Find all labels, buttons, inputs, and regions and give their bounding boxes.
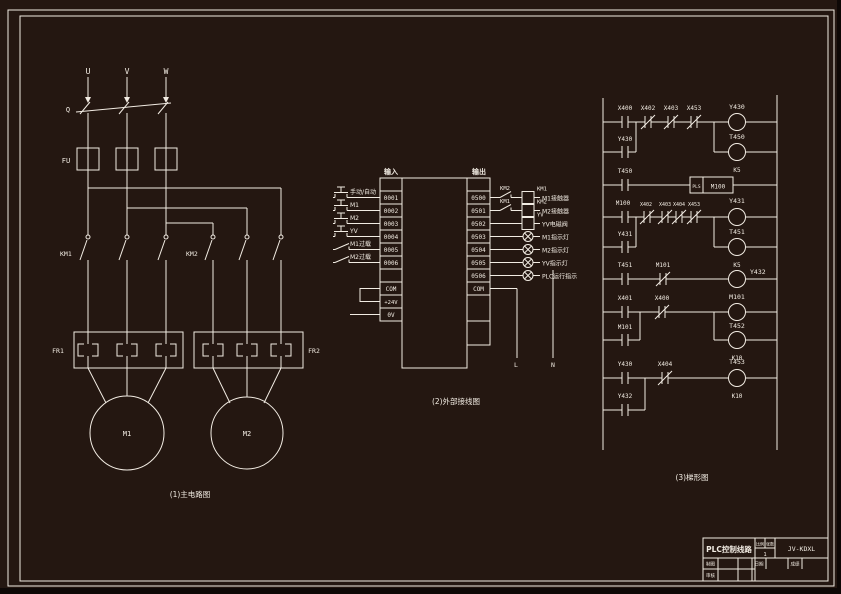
drawing-number: JV-KDXL (788, 545, 815, 553)
fr1-label: FR1 (52, 347, 64, 355)
ladder-rung-4: T451 M101 Y432 (603, 262, 777, 288)
com-terminal: COM (386, 286, 397, 293)
output-desc: PLC运行指示 (542, 273, 577, 281)
project-title: PLC控制线路 (706, 544, 752, 554)
right-shadow (837, 0, 841, 594)
km-contacts (80, 235, 283, 332)
contact-label: X400 (655, 295, 670, 302)
pushbutton-yv: YV (333, 226, 380, 237)
motor-m2: M2 (211, 368, 283, 469)
output-lamp-plc: PLC运行指示 (490, 271, 577, 281)
live-label: L (514, 361, 518, 369)
pls-operand-label: M100 (711, 184, 726, 191)
pushbutton-auto-manual: 手动/自动 (333, 187, 380, 198)
drawing-frame (8, 10, 834, 586)
schematic-svg: U V W Q FU KM1 KM2 (0, 0, 841, 594)
plc-body (402, 178, 467, 368)
input-addr: 0003 (384, 221, 399, 228)
plus24v-terminal: +24V (384, 300, 398, 306)
input-terminal-column: 0001 0002 0003 0004 0005 0006 COM +24V 0… (380, 178, 402, 321)
phase-u-label: U (86, 67, 91, 76)
timer-label: T450 (729, 133, 745, 141)
fuses (77, 113, 177, 235)
scale-label: 比例 (756, 541, 764, 547)
ladder-rung-5: X401 X400 M101 M101 T452 K10 (603, 293, 777, 362)
overload-contact-m2: M2过载 (333, 253, 380, 263)
sheet-label: 张数 (766, 541, 774, 547)
cad-drawing-canvas: U V W Q FU KM1 KM2 (0, 0, 841, 594)
input-device-label: YV (349, 228, 359, 235)
seal-contact-label: Y432 (618, 393, 633, 400)
timer-setpoint: K5 (733, 262, 741, 269)
output-addr: 0505 (471, 260, 486, 267)
input-device-label: 手动/自动 (350, 188, 376, 196)
output-terminal-column: 0500 0501 0502 0503 0504 0505 0506 COM (467, 178, 490, 345)
interlock-contact-label: KM2 (500, 186, 510, 192)
switch-q-label: Q (66, 106, 70, 114)
sheet-value: 1 (763, 552, 766, 558)
contact-label: X453 (687, 105, 702, 112)
output-addr: 0502 (471, 221, 486, 228)
output-lamp-m2: M2指示灯 (490, 245, 569, 255)
seal-contact-label: Y431 (618, 231, 633, 238)
input-device-label: M1 (350, 202, 359, 209)
com-out-terminal: COM (473, 286, 484, 293)
pushbutton-m2: M2 (333, 213, 380, 224)
motor-m1: M1 (88, 368, 166, 470)
ladder-rung-1: X400 X402 X403 X453 Y430 Y430 T450 K5 (603, 103, 777, 174)
output-lamp-m1: M1指示灯 (490, 232, 569, 242)
contact-label: X400 (618, 105, 633, 112)
contact-label: T451 (618, 262, 633, 269)
wiring-diagram: 输入 输出 0001 0002 0003 0004 0005 0006 COM … (333, 167, 577, 406)
interlock-contact-label: KM1 (500, 199, 510, 205)
contact-label: T450 (618, 168, 633, 175)
date-label: 日期 (755, 562, 764, 568)
coil-label: Y430 (729, 103, 745, 111)
input-addr: 0004 (384, 234, 399, 241)
main-circuit-diagram: U V W Q FU KM1 KM2 (52, 67, 320, 499)
title-block: PLC控制线路 比例 张数 1 JV-KDXL 制图 日期 成绩 审核 (703, 538, 828, 581)
pushbutton-m1: M1 (333, 200, 380, 211)
phase-v-label: V (125, 67, 130, 76)
phase-w-label: W (164, 67, 169, 76)
output-lamp-yv: YV指示灯 (490, 258, 568, 268)
neutral-label: N (551, 361, 555, 369)
drafter-label: 制图 (706, 561, 715, 568)
timer-label: T451 (729, 228, 745, 236)
output-addr: 0506 (471, 273, 486, 280)
coil-label: YV (537, 213, 544, 219)
timer-setpoint: K5 (733, 167, 741, 174)
output-desc: M2指示灯 (542, 247, 569, 255)
branch-buses (88, 188, 281, 235)
contact-label: Y430 (618, 361, 633, 368)
input-addr: 0006 (384, 260, 399, 267)
motor-m1-label: M1 (123, 430, 131, 438)
ladder-diagram: X400 X402 X403 X453 Y430 Y430 T450 K5 T4… (603, 95, 777, 482)
contact-label: X402 (640, 202, 652, 208)
output-desc: YV指示灯 (541, 260, 568, 268)
timer-setpoint: K10 (732, 393, 743, 400)
input-addr: 0001 (384, 195, 399, 202)
supply-lines: L N (490, 270, 555, 369)
contact-label: X401 (618, 295, 633, 302)
contact-label: X402 (641, 105, 656, 112)
output-addr: 0500 (471, 195, 486, 202)
fuse-label: FU (62, 157, 70, 165)
fr2-label: FR2 (308, 347, 320, 355)
ladder-rung-2: T450 PLS M100 (603, 168, 777, 193)
output-devices: KM2 KM1 M1接触器 KM1 KM2 M2接触器 YV YV电磁阀 (490, 186, 577, 369)
output-desc: M2接触器 (542, 208, 569, 216)
input-device-label: M2过载 (350, 253, 371, 261)
input-header: 输入 (384, 167, 398, 176)
contact-label: X403 (664, 105, 679, 112)
coil-label: Y432 (750, 268, 766, 276)
contact-label: X403 (659, 202, 671, 208)
switch-q-blades (76, 102, 171, 114)
contact-label: X453 (688, 202, 700, 208)
ladder-rung-3: M100 X402 X403 X404 X453 Y431 Y431 T451 … (603, 197, 777, 269)
km1-label: KM1 (60, 250, 72, 258)
contact-label: M101 (656, 262, 671, 269)
checker-label: 审核 (706, 572, 715, 579)
output-addr: 0504 (471, 247, 486, 254)
input-device-label: M2 (350, 215, 359, 222)
contact-label: M100 (616, 200, 631, 207)
output-addr: 0501 (471, 208, 486, 215)
contact-label: X404 (673, 202, 685, 208)
com-loop-wire (360, 289, 380, 302)
bottom-shadow (0, 588, 841, 594)
wiring-caption: (2)外部接线图 (432, 396, 480, 406)
thermal-relays (74, 332, 303, 368)
output-desc: M1指示灯 (542, 234, 569, 242)
input-addr: 0002 (384, 208, 399, 215)
ladder-caption: (3)梯形图 (675, 472, 708, 482)
input-devices: 手动/自动 M1 M2 YV M1过载 M2过载 (333, 187, 380, 315)
contact-label: X404 (658, 361, 673, 368)
pls-function-label: PLS (692, 184, 700, 190)
output-addr: 0503 (471, 234, 486, 241)
seal-contact-label: M101 (618, 324, 633, 331)
main-circuit-caption: (1)主电路图 (170, 489, 211, 499)
km2-label: KM2 (186, 250, 198, 258)
coil-label: KM1 (537, 187, 547, 193)
coil-label: KM2 (537, 200, 547, 206)
motor-m2-label: M2 (243, 430, 251, 438)
input-addr: 0005 (384, 247, 399, 254)
coil-label: M101 (729, 293, 745, 301)
input-device-label: M1过载 (350, 240, 371, 248)
timer-coil-label: T453 (729, 358, 745, 366)
overload-contact-m1: M1过载 (333, 240, 380, 250)
output-header: 输出 (472, 167, 486, 176)
zero-v-terminal: 0V (387, 312, 395, 319)
grade-label: 成绩 (791, 561, 800, 568)
seal-contact-label: Y430 (618, 136, 633, 143)
coil-label: Y431 (729, 197, 745, 205)
ladder-rung-6: Y430 X404 T453 K10 Y432 (603, 358, 777, 416)
output-desc: YV电磁阀 (541, 221, 568, 229)
timer-label: T452 (729, 322, 745, 330)
